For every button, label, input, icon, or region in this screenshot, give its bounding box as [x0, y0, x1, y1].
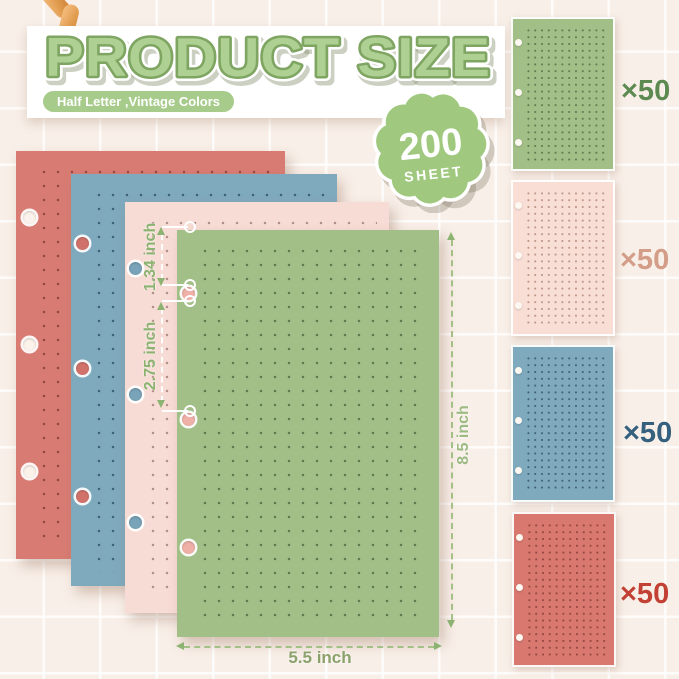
- punch-hole: [515, 367, 522, 374]
- page-title-fill: PRODUCT SIZE: [45, 28, 491, 88]
- arrow-down-icon: [447, 620, 455, 628]
- subtitle-pill: Half Letter ,Vintage Colors: [43, 91, 234, 112]
- punch-hole: [23, 211, 36, 224]
- punch-hole: [515, 302, 522, 309]
- dot-grid: [525, 27, 605, 161]
- arrow-up-icon: [157, 302, 165, 310]
- punch-hole: [516, 634, 523, 641]
- punch-hole: [515, 202, 522, 209]
- punch-hole: [516, 584, 523, 591]
- sheet-count-label-blue: ×50: [623, 417, 672, 450]
- arrow-down-icon: [157, 400, 165, 408]
- arrow-right-icon: [434, 642, 442, 650]
- sheet-count-label-green: ×50: [621, 75, 670, 108]
- punch-hole: [129, 262, 142, 275]
- dimension-label-width: 5.5 inch: [285, 648, 355, 664]
- dot-grid: [525, 355, 605, 492]
- sheet-count-label-red: ×50: [620, 578, 669, 611]
- measure-marker: [184, 221, 196, 233]
- arrow-up-icon: [447, 232, 455, 240]
- dot-grid: [526, 522, 606, 657]
- punch-hole: [516, 534, 523, 541]
- dimension-label-hole-spacing: 2.75 inch: [142, 321, 158, 391]
- punch-hole: [515, 467, 522, 474]
- arrow-left-icon: [176, 642, 184, 650]
- stacked-sheet-green: [177, 230, 439, 637]
- measure-marker: [184, 405, 196, 417]
- product-size-infographic: PRODUCT SIZE PRODUCT SIZE PRODUCT SIZE P…: [0, 0, 679, 679]
- dot-grid: [198, 244, 427, 623]
- punch-hole: [515, 39, 522, 46]
- sheet-count-badge: 200 SHEET: [366, 83, 496, 213]
- punch-hole: [76, 490, 89, 503]
- dimension-label-height: 8.5 inch: [455, 400, 471, 470]
- swatch-red: [512, 512, 616, 667]
- measure-arrow-hole-spacing: [161, 308, 163, 402]
- punch-hole: [23, 338, 36, 351]
- punch-hole: [23, 465, 36, 478]
- badge-count: 200: [397, 121, 464, 169]
- page-title: PRODUCT SIZE PRODUCT SIZE PRODUCT SIZE P…: [37, 28, 499, 90]
- swatch-pink: [511, 180, 615, 336]
- dot-grid: [525, 190, 605, 326]
- punch-hole: [76, 362, 89, 375]
- sheet-count-label-pink: ×50: [620, 244, 669, 277]
- punch-hole: [515, 139, 522, 146]
- measure-marker: [184, 279, 196, 291]
- measure-arrow-hole-offset: [161, 234, 163, 280]
- measure-arrow-height: [451, 240, 453, 620]
- measure-marker: [184, 295, 196, 307]
- swatch-blue: [511, 345, 615, 502]
- punch-hole: [515, 252, 522, 259]
- dimension-label-hole-offset: 1.34 inch: [142, 222, 158, 292]
- punch-hole: [129, 388, 142, 401]
- swatch-green: [511, 17, 615, 171]
- punch-hole: [76, 237, 89, 250]
- punch-hole: [515, 89, 522, 96]
- subtitle-text: Half Letter ,Vintage Colors: [57, 94, 220, 109]
- punch-hole: [129, 516, 142, 529]
- punch-hole: [182, 541, 195, 554]
- punch-hole: [515, 417, 522, 424]
